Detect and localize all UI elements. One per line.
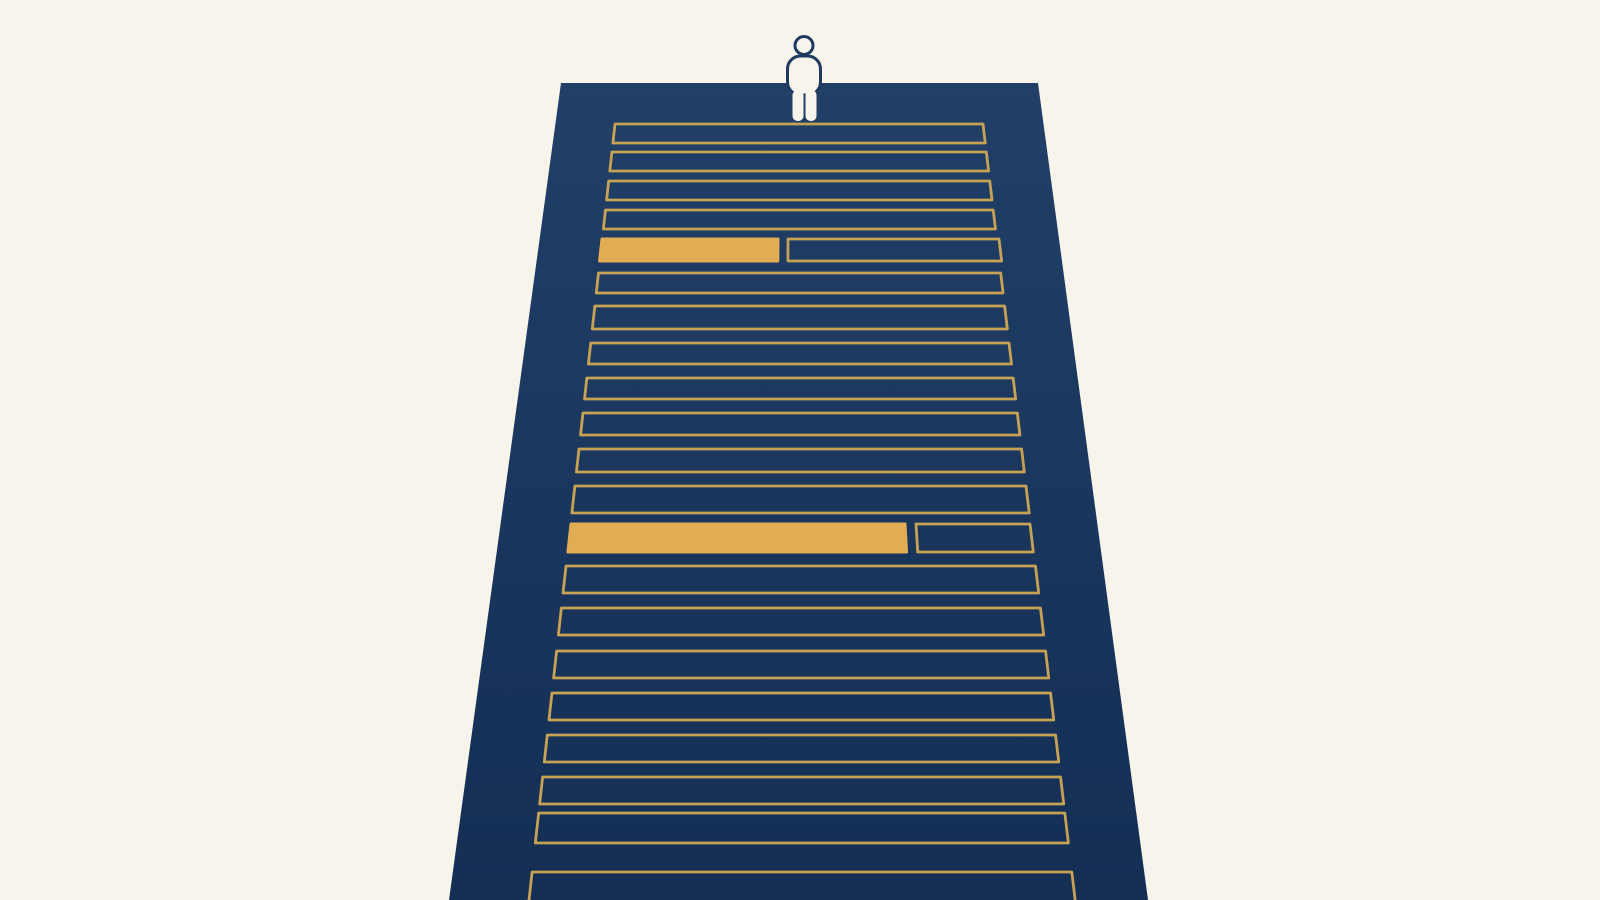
illustration-stage — [0, 0, 1600, 900]
person-leg-left — [793, 90, 804, 121]
illustration-canvas — [0, 0, 1600, 900]
person-body — [788, 56, 821, 95]
ladder-rung-filled — [600, 239, 778, 261]
ladder-rung-filled — [568, 524, 907, 552]
person-leg-right — [806, 90, 817, 121]
person-head — [795, 37, 813, 55]
